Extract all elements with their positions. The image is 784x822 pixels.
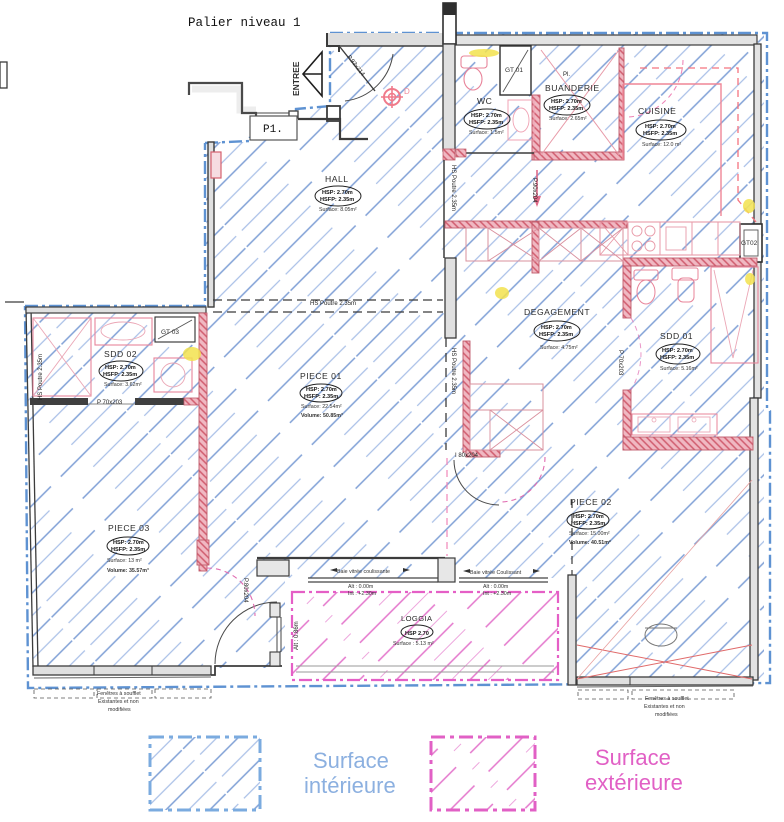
svg-text:SDD 01: SDD 01 bbox=[660, 331, 693, 341]
svg-text:Baie vitrée Coulissant: Baie vitrée Coulissant bbox=[470, 570, 522, 576]
svg-text:HS Poutre 2.35m: HS Poutre 2.35m bbox=[38, 354, 44, 400]
svg-text:Surface: 13 m²: Surface: 13 m² bbox=[107, 558, 142, 564]
svg-text:Surface: 2.65m²: Surface: 2.65m² bbox=[549, 116, 587, 122]
svg-text:HS Poutre 2.35m: HS Poutre 2.35m bbox=[310, 301, 356, 307]
svg-text:Fenêtres à soufflet: Fenêtres à soufflet bbox=[645, 696, 689, 702]
svg-text:HSFP: 2.35m: HSFP: 2.35m bbox=[660, 355, 694, 361]
svg-text:HS Poutre 2.35m: HS Poutre 2.35m bbox=[450, 165, 456, 211]
svg-text:HSP: 2.70m: HSP: 2.70m bbox=[645, 124, 676, 130]
svg-text:HSP: 2.70m: HSP: 2.70m bbox=[306, 387, 337, 393]
svg-text:Int : +2.30m: Int : +2.30m bbox=[483, 591, 512, 597]
svg-text:Surface: 8.05m²: Surface: 8.05m² bbox=[319, 207, 357, 213]
svg-text:Palier niveau 1: Palier niveau 1 bbox=[188, 16, 301, 30]
svg-text:extérieure: extérieure bbox=[585, 770, 683, 795]
svg-text:Int : +2.30m: Int : +2.30m bbox=[348, 591, 377, 597]
svg-text:DEGAGEMENT: DEGAGEMENT bbox=[524, 307, 590, 317]
svg-text:LOGGIA: LOGGIA bbox=[401, 614, 433, 623]
svg-text:HSFP: 2.35m: HSFP: 2.35m bbox=[469, 120, 503, 126]
svg-text:GT02: GT02 bbox=[741, 240, 758, 247]
svg-text:Baie vitrée coulissante: Baie vitrée coulissante bbox=[337, 569, 390, 575]
svg-text:BUANDERIE: BUANDERIE bbox=[545, 83, 600, 93]
svg-text:PIECE 03: PIECE 03 bbox=[108, 523, 150, 533]
svg-text:Surface: Surface bbox=[595, 745, 671, 770]
svg-text:HSP: 2.70m: HSP: 2.70m bbox=[322, 190, 353, 196]
svg-text:HSFP: 2.35m: HSFP: 2.35m bbox=[571, 521, 605, 527]
svg-text:Surface: 4.75m²: Surface: 4.75m² bbox=[540, 345, 578, 351]
svg-text:P.90x204: P.90x204 bbox=[531, 178, 537, 203]
svg-text:P 70x203: P 70x203 bbox=[97, 400, 123, 406]
svg-text:HALL: HALL bbox=[325, 174, 349, 184]
svg-text:P1.: P1. bbox=[263, 124, 283, 136]
svg-text:HSFP: 2.35m: HSFP: 2.35m bbox=[643, 131, 677, 137]
svg-text:Volume: 35.57m³: Volume: 35.57m³ bbox=[107, 568, 149, 574]
svg-text:HSP: 2.70m: HSP: 2.70m bbox=[551, 99, 582, 105]
svg-text:CUISINE: CUISINE bbox=[638, 106, 676, 116]
svg-text:Surface : 5.13 m²: Surface : 5.13 m² bbox=[393, 641, 434, 647]
svg-text:HSP: 2.70m: HSP: 2.70m bbox=[105, 365, 136, 371]
svg-text:HSFP: 2.35m: HSFP: 2.35m bbox=[549, 106, 583, 112]
svg-text:Surface: 5.16m²: Surface: 5.16m² bbox=[660, 366, 698, 372]
svg-text:Alt : 0.00m: Alt : 0.00m bbox=[348, 584, 374, 590]
svg-text:HSFP: 2.35m: HSFP: 2.35m bbox=[103, 372, 137, 378]
svg-text:modifiées: modifiées bbox=[655, 712, 678, 718]
svg-text:HSP: 2.70m: HSP: 2.70m bbox=[662, 348, 693, 354]
svg-text:Volume: 40.51m²: Volume: 40.51m² bbox=[569, 540, 611, 546]
svg-text:HSFP: 2.35m: HSFP: 2.35m bbox=[320, 197, 354, 203]
svg-text:HSP: 2.70m: HSP: 2.70m bbox=[573, 514, 604, 520]
svg-text:HSP: 2.70m: HSP: 2.70m bbox=[471, 113, 502, 119]
svg-text:HS Poutre 2.35m: HS Poutre 2.35m bbox=[450, 348, 456, 394]
svg-text:Surface: 12.0 m²: Surface: 12.0 m² bbox=[642, 142, 681, 148]
svg-text:HSFP: 2.35m: HSFP: 2.35m bbox=[304, 394, 338, 400]
svg-text:Existantes et non: Existantes et non bbox=[98, 699, 139, 705]
svg-text:intérieure: intérieure bbox=[304, 773, 396, 798]
svg-text:Surface: 22.54m²: Surface: 22.54m² bbox=[301, 404, 342, 410]
svg-text:Surface: 1.5m²: Surface: 1.5m² bbox=[469, 130, 504, 136]
svg-text:Alt : 0.00m: Alt : 0.00m bbox=[483, 584, 509, 590]
svg-text:P.80x204: P.80x204 bbox=[242, 578, 248, 603]
svg-text:I 80x204: I 80x204 bbox=[455, 453, 479, 459]
svg-text:HSP 2.70: HSP 2.70 bbox=[405, 631, 429, 637]
svg-text:Existantes et non: Existantes et non bbox=[644, 704, 685, 710]
svg-text:PIECE 01: PIECE 01 bbox=[300, 371, 342, 381]
svg-text:Alt : 0.86m: Alt : 0.86m bbox=[294, 621, 300, 650]
svg-text:HSFP: 2.35m: HSFP: 2.35m bbox=[111, 547, 145, 553]
svg-text:PIECE 02: PIECE 02 bbox=[570, 497, 612, 507]
svg-text:Fenêtres à soufflet: Fenêtres à soufflet bbox=[97, 691, 141, 697]
svg-text:D: D bbox=[404, 87, 410, 96]
svg-text:Pl.: Pl. bbox=[563, 72, 570, 78]
svg-text:P 70x203: P 70x203 bbox=[617, 350, 623, 376]
svg-text:Surface: 15.00m²: Surface: 15.00m² bbox=[569, 531, 610, 537]
svg-text:ENTREE: ENTREE bbox=[291, 61, 301, 96]
svg-text:GT 03: GT 03 bbox=[161, 329, 179, 336]
svg-text:HSFP: 2.35m: HSFP: 2.35m bbox=[539, 332, 573, 338]
svg-text:WC: WC bbox=[477, 96, 492, 106]
svg-text:SDD 02: SDD 02 bbox=[104, 349, 137, 359]
svg-text:Surface: 3.62m²: Surface: 3.62m² bbox=[104, 382, 142, 388]
svg-text:Surface: Surface bbox=[313, 748, 389, 773]
svg-text:modifiées: modifiées bbox=[108, 707, 131, 713]
svg-text:HSP: 2.70m: HSP: 2.70m bbox=[113, 540, 144, 546]
svg-text:HSP: 2.70m: HSP: 2.70m bbox=[541, 325, 572, 331]
svg-text:GT 01: GT 01 bbox=[505, 67, 523, 74]
svg-text:Volume: 50.85m³: Volume: 50.85m³ bbox=[301, 413, 343, 419]
